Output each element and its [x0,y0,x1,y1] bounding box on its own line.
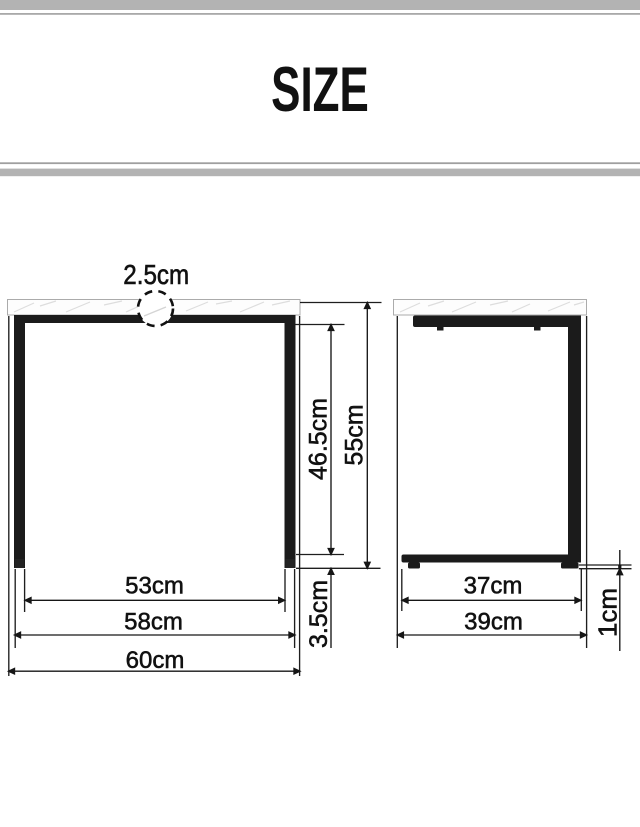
svg-text:39cm: 39cm [464,609,523,636]
svg-text:3.5cm: 3.5cm [305,580,333,648]
svg-text:55cm: 55cm [341,404,369,465]
svg-text:SIZE: SIZE [271,54,369,125]
svg-text:1cm: 1cm [593,588,623,637]
svg-text:58cm: 58cm [124,609,183,636]
svg-text:2.5cm: 2.5cm [123,261,189,291]
svg-text:53cm: 53cm [125,573,184,600]
svg-text:46.5cm: 46.5cm [305,398,333,480]
svg-text:60cm: 60cm [126,647,185,674]
svg-text:37cm: 37cm [464,573,523,600]
